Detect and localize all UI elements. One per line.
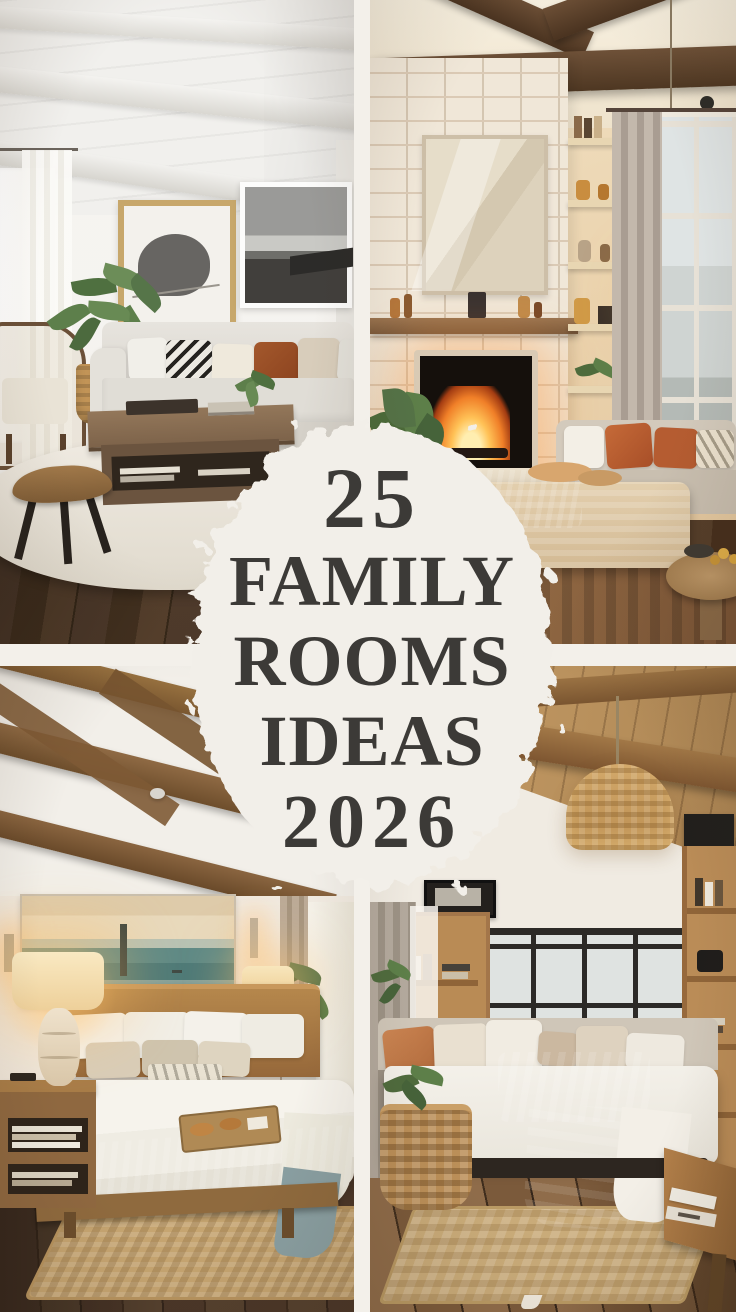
title-year: 2026 bbox=[282, 781, 462, 863]
title-badge: 25 FAMILY ROOMS IDEAS 2026 bbox=[170, 405, 574, 905]
title-word-rooms: ROOMS bbox=[233, 621, 510, 701]
title-word-family: FAMILY bbox=[229, 541, 515, 621]
badge-title: 25 FAMILY ROOMS IDEAS 2026 bbox=[170, 405, 574, 905]
title-count: 25 bbox=[323, 455, 421, 541]
title-word-ideas: IDEAS bbox=[259, 701, 484, 781]
pin-collage: 25 FAMILY ROOMS IDEAS 2026 bbox=[0, 0, 736, 1312]
